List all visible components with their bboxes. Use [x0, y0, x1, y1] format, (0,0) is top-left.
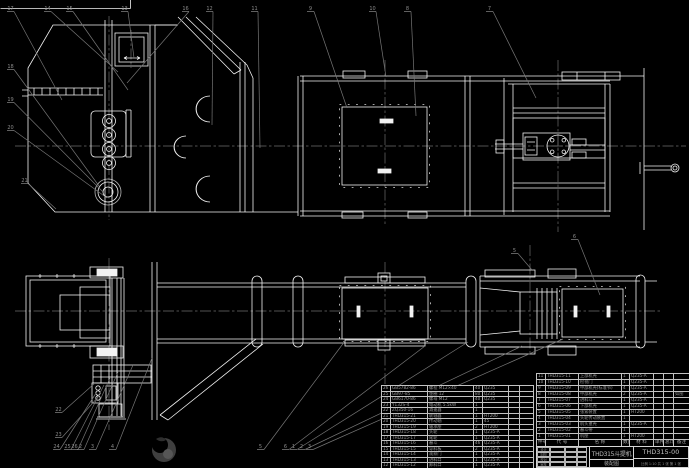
- bom-table-right: 11THD315-11上部机壳1Q235-A10THD315-10检视门1Q23…: [536, 373, 689, 447]
- callout-leader: [212, 12, 213, 126]
- title-product-area: THD315斗提机 装配图: [589, 447, 633, 467]
- sign-cell: [577, 462, 587, 467]
- sign-label: 审核: [537, 462, 550, 467]
- top-view-elevation: [1, 0, 680, 230]
- callout-number: 14: [44, 6, 50, 12]
- callout-leader: [73, 12, 128, 91]
- callout-number: 8: [406, 6, 409, 12]
- callout-number: 11: [251, 6, 257, 12]
- motor: [99, 404, 122, 417]
- take-up-screw: [640, 162, 671, 174]
- callout-number: 25: [64, 444, 70, 450]
- callout-leader: [411, 12, 416, 117]
- callout-number: 7: [488, 6, 491, 12]
- callout-leader: [314, 12, 347, 109]
- callout-number: 24: [53, 444, 59, 450]
- title-number-area: THD315-00 比例 1:10 共 1 张 第 1 张: [633, 447, 688, 467]
- product-title: THD315斗提机: [590, 447, 633, 459]
- callout-number: 3: [308, 444, 311, 450]
- callout-number: 26: [71, 444, 77, 450]
- callout-leader: [60, 390, 98, 450]
- drive-housing: [91, 111, 126, 157]
- bom-cell: 卸料口: [428, 463, 474, 468]
- sheet-info: 比例 1:10 共 1 张 第 1 张: [634, 458, 688, 467]
- callout-number: 12: [206, 6, 212, 12]
- callout-number: 2: [79, 444, 82, 450]
- callout-number: 5: [259, 444, 262, 450]
- bom-cell: Q235-A: [483, 463, 509, 468]
- cad-drawing-sheet: 1714151316121191087181920212223242526234…: [0, 0, 689, 468]
- sign-cell: [550, 462, 565, 467]
- bom-cell: [509, 463, 520, 468]
- callout-number: 16: [182, 6, 188, 12]
- discharge-chute: [155, 17, 253, 212]
- callout-number: 13: [121, 6, 127, 12]
- callout-number: 5: [513, 248, 516, 254]
- callout-leader: [258, 12, 260, 149]
- callout-number: 17: [7, 6, 13, 12]
- callout-number: 2: [300, 444, 303, 450]
- bolt-tick-rects: [340, 105, 626, 342]
- bom-cell: [520, 463, 534, 468]
- callout-number: 18: [7, 64, 13, 70]
- callout-number: 1: [292, 444, 295, 450]
- callout-leader: [96, 365, 133, 450]
- doc-type: 装配图: [590, 459, 633, 467]
- bom-row: 12THD315-12卸料口1Q235-A: [382, 463, 534, 468]
- callout-number: 21: [21, 178, 27, 184]
- callout-number: 20: [7, 125, 13, 131]
- callout-number: 6: [284, 444, 287, 450]
- callout-leader: [51, 12, 118, 73]
- callout-leader: [376, 12, 386, 78]
- sign-cell: [565, 462, 577, 467]
- head-casing: [28, 25, 298, 212]
- tail-section: [495, 68, 679, 230]
- callout-leader: [127, 12, 189, 84]
- bom-table-left: 26GB5782-86螺栓 M12×4040Q23525GB97-85垫圈 12…: [381, 385, 534, 468]
- callout-number: 23: [55, 432, 61, 438]
- callout-number: 15: [66, 6, 72, 12]
- tail-plan: [480, 269, 657, 355]
- trunk-plan: [157, 283, 466, 343]
- drawing-number: THD315-00: [634, 447, 688, 458]
- callout-leader: [493, 12, 536, 99]
- callout-number: 6: [573, 234, 576, 240]
- buckets: [174, 96, 210, 202]
- callout-number: 3: [91, 444, 94, 450]
- feed-chute-plan: [160, 339, 263, 420]
- bom-cell: THD315-12: [391, 463, 428, 468]
- drive-gears: [95, 115, 121, 206]
- callout-number: 4: [111, 444, 114, 450]
- callout-leader: [14, 70, 99, 187]
- bom-cell: 1: [474, 463, 483, 468]
- watermark-logo: [152, 437, 176, 462]
- callout-number: 10: [369, 6, 375, 12]
- callout-leader: [28, 184, 56, 210]
- callout-number: 22: [55, 407, 61, 413]
- callout-number: 9: [309, 6, 312, 12]
- callout-leader: [578, 240, 600, 296]
- callout-number: 19: [7, 97, 13, 103]
- callout-leader: [264, 341, 345, 450]
- callout-leader: [62, 383, 95, 413]
- signature-grid: 设计制图校对审核: [537, 447, 589, 467]
- bom-cell: 12: [382, 463, 391, 468]
- chain-guides: [105, 20, 112, 212]
- title-block: 设计制图校对审核 THD315斗提机 装配图 THD315-00 比例 1:10…: [536, 446, 689, 468]
